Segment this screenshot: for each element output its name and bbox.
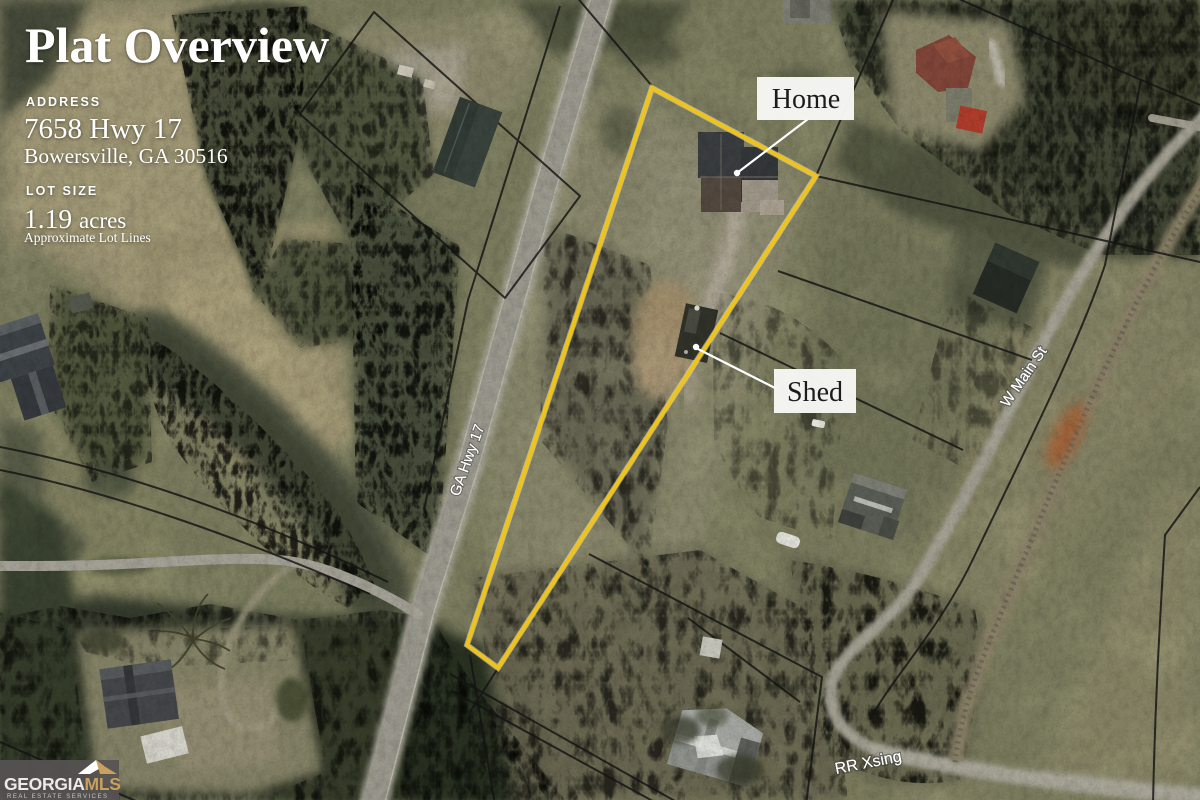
svg-text:GEORGIAMLS: GEORGIAMLS	[4, 774, 121, 794]
svg-text:Bowersville, GA 30516: Bowersville, GA 30516	[24, 144, 228, 168]
svg-text:Plat Overview: Plat Overview	[25, 17, 329, 73]
svg-text:7658 Hwy 17: 7658 Hwy 17	[24, 113, 182, 145]
svg-text:LOT SIZE: LOT SIZE	[26, 184, 98, 198]
svg-text:Shed: Shed	[787, 377, 843, 408]
svg-text:ADDRESS: ADDRESS	[26, 95, 101, 109]
svg-text:Home: Home	[772, 84, 840, 115]
svg-text:Approximate Lot Lines: Approximate Lot Lines	[24, 230, 151, 245]
svg-text:REAL ESTATE SERVICES: REAL ESTATE SERVICES	[7, 794, 108, 800]
